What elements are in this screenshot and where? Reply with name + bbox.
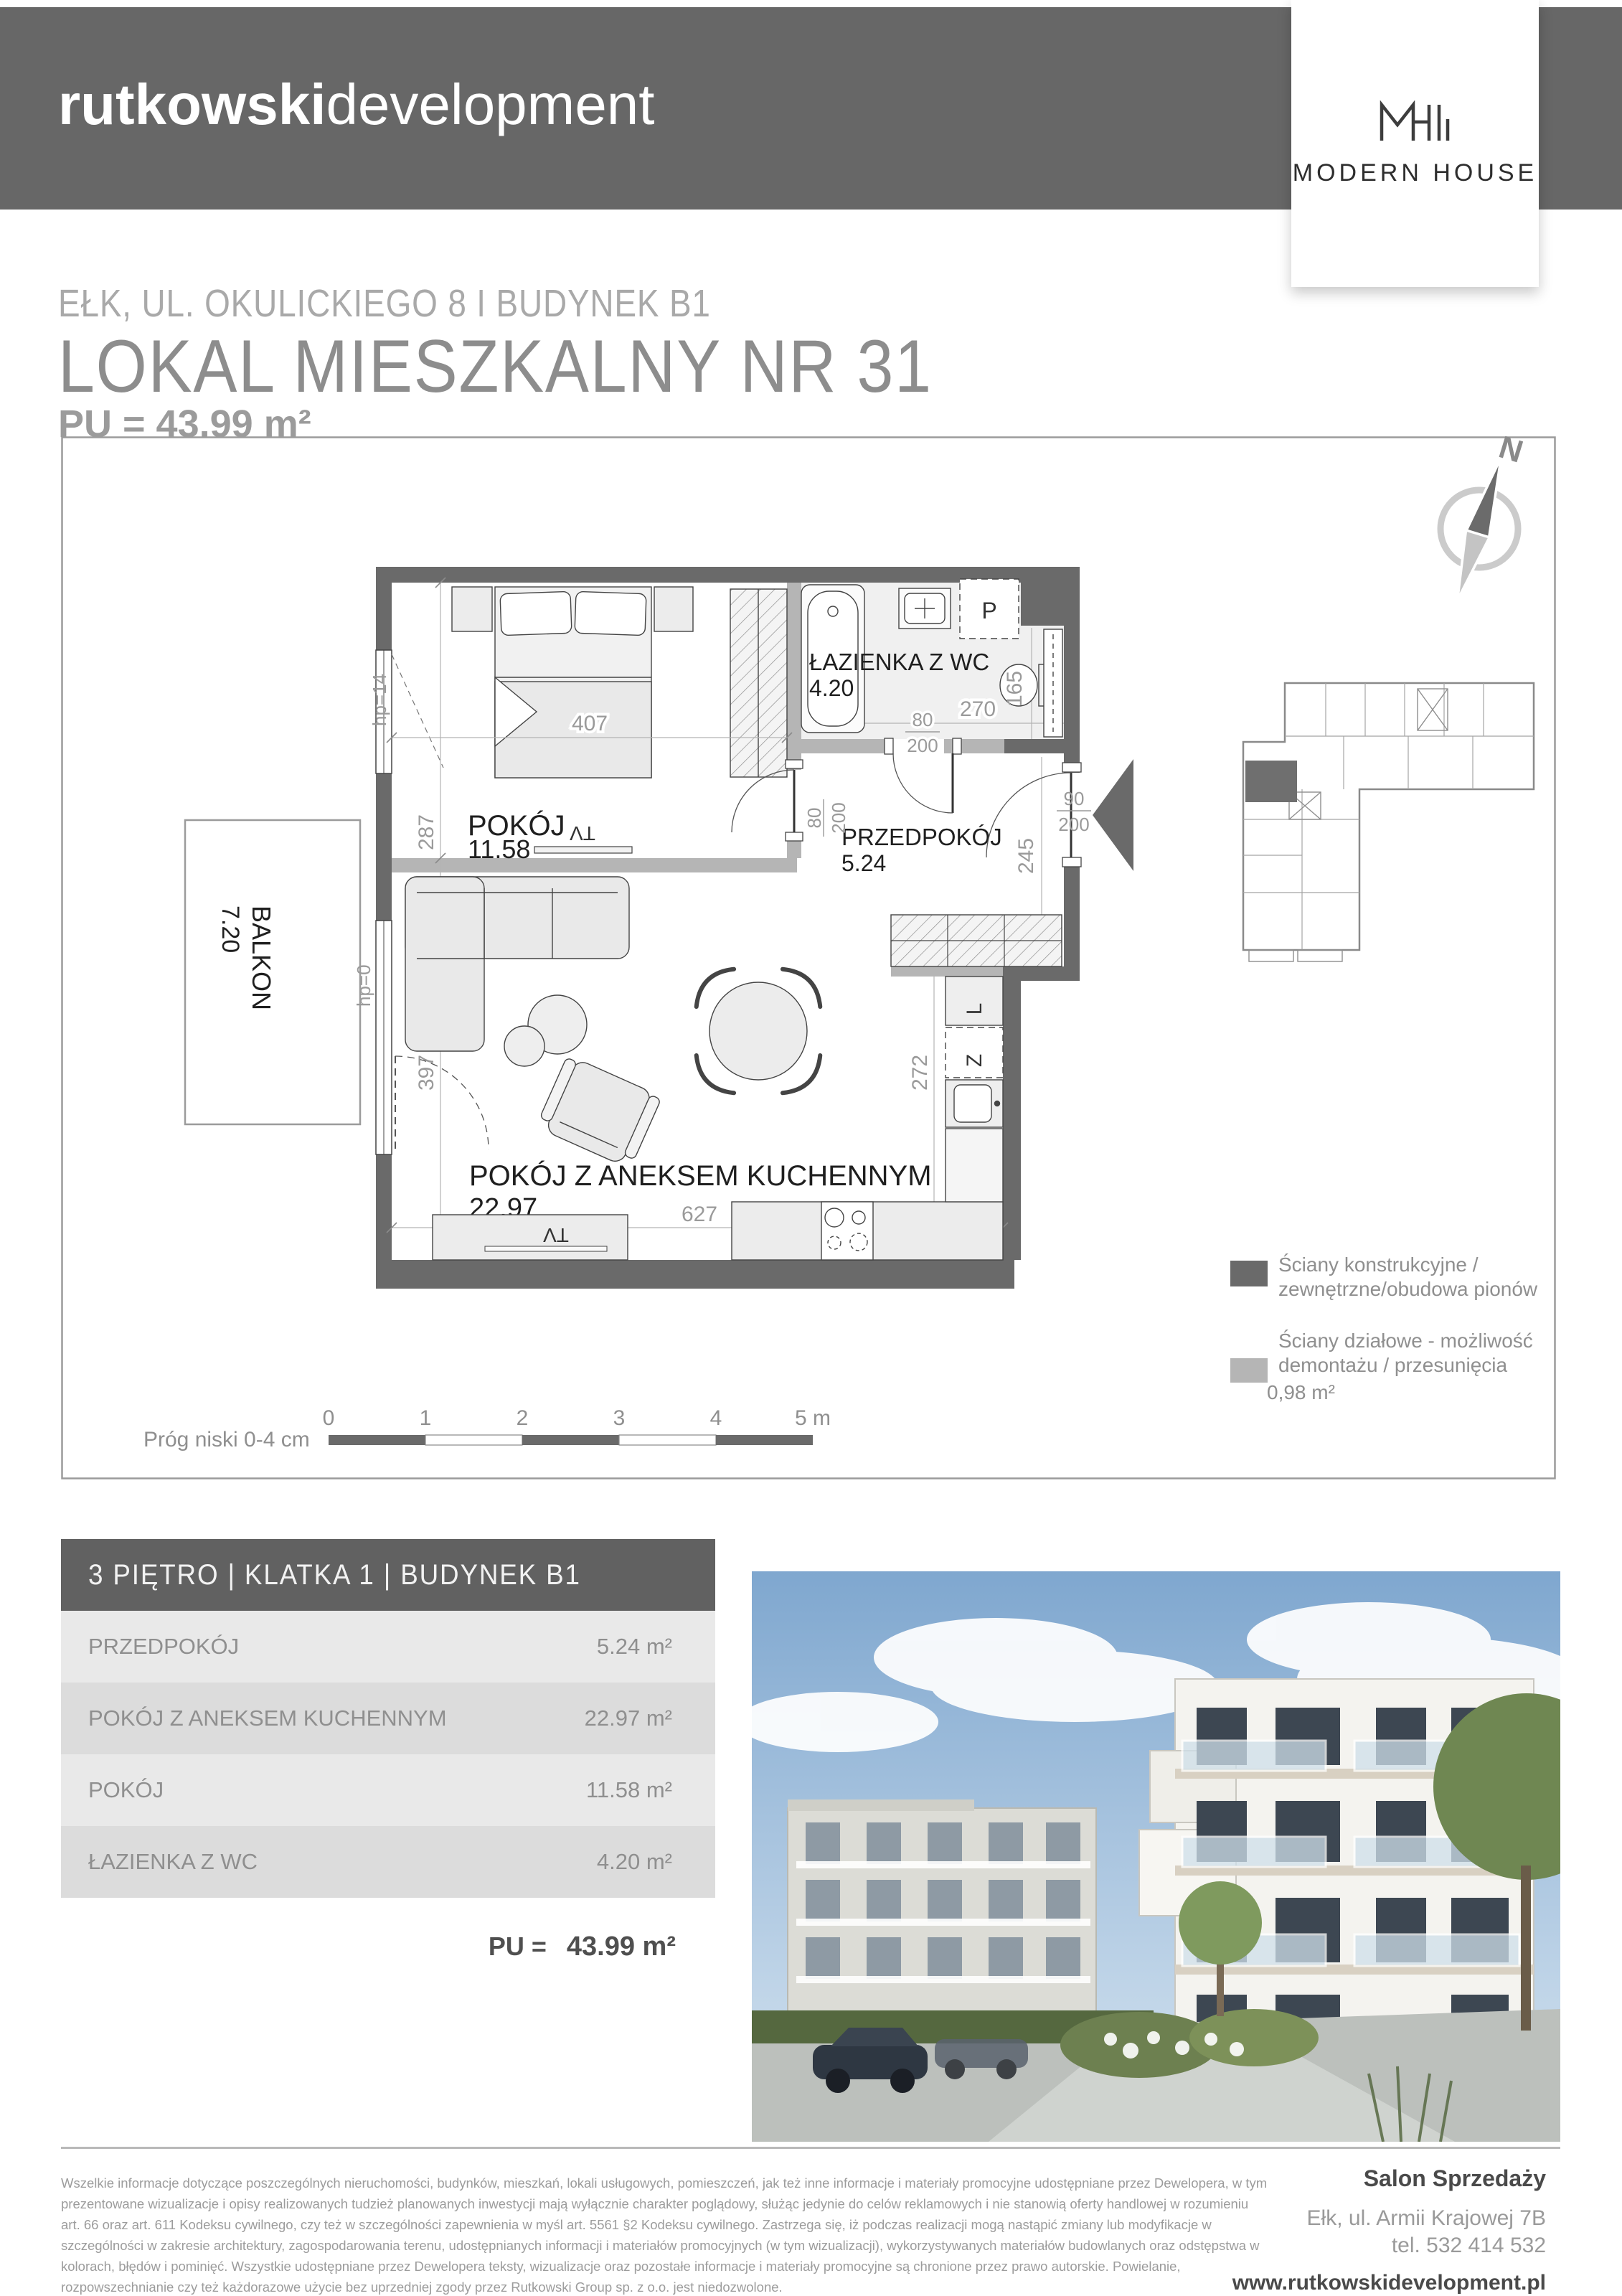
scale-tick: 1 xyxy=(420,1406,432,1430)
scale-tick: 0 xyxy=(323,1406,335,1430)
building-photo xyxy=(752,1571,1560,2142)
footer-divider xyxy=(61,2147,1560,2149)
legal-text: Wszelkie informacje dotyczące poszczegól… xyxy=(61,2173,1302,2296)
table-row: POKÓJ 11.58 m² xyxy=(61,1754,715,1826)
row-name: POKÓJ xyxy=(88,1777,164,1803)
brand-bold: rutkowski xyxy=(58,72,326,136)
scale-note: Próg niski 0-4 cm xyxy=(143,1428,310,1452)
total-value: 43.99 m² xyxy=(567,1932,676,1962)
bedroom-area: 11.58 xyxy=(468,834,530,864)
door-dim-80b: 80 xyxy=(913,709,933,730)
scale-tick: 4 xyxy=(710,1406,722,1430)
modern-house-logo-icon xyxy=(1379,100,1451,145)
floor-plan: N xyxy=(61,436,1556,1479)
bedroom-furniture xyxy=(452,587,787,778)
fridge-label: L xyxy=(963,1003,986,1015)
door-dim-200b: 200 xyxy=(907,735,938,756)
table-total: PU =43.99 m² xyxy=(61,1932,715,1962)
balcony: BALKON 7.20 xyxy=(185,820,360,1124)
sales-office-block: Salon Sprzedaży Ełk, ul. Armii Krajowej … xyxy=(1232,2165,1546,2295)
hall-area: 5.24 xyxy=(841,850,886,876)
legend-partition-line1: Ściany działowe - możliwość xyxy=(1278,1329,1533,1352)
row-area: 11.58 m² xyxy=(586,1777,672,1803)
washer-label: P xyxy=(981,598,996,624)
legend-structural-line2: zewnętrzne/obudowa pionów xyxy=(1278,1278,1538,1300)
brand-light: development xyxy=(326,72,654,136)
window-hp-label: hp=14 xyxy=(369,674,390,726)
legend-structural-line1: Ściany konstrukcyjne / xyxy=(1278,1253,1479,1276)
door-dim-200a: 200 xyxy=(828,802,849,833)
modern-house-card: MODERN HOUSE xyxy=(1291,0,1539,287)
door-dim-90: 90 xyxy=(1064,788,1085,809)
row-name: ŁAZIENKA Z WC xyxy=(88,1849,258,1875)
door-dim-200c: 200 xyxy=(1058,814,1089,835)
sales-office-website: www.rutkowskidevelopment.pl xyxy=(1232,2271,1546,2295)
hall-wardrobe xyxy=(891,915,1062,966)
balcony-area: 7.20 xyxy=(217,905,244,953)
bathroom-label: ŁAZIENKA Z WC xyxy=(809,649,989,675)
bedroom-tv-label: TV xyxy=(570,822,595,844)
legal-line: kolorach, błędów i pominięć. Wszystkie u… xyxy=(61,2256,1302,2277)
scale-tick: 3 xyxy=(613,1406,626,1430)
total-label: PU = xyxy=(489,1932,547,1961)
living-label: POKÓJ Z ANEKSEM KUCHENNYM xyxy=(469,1159,932,1192)
dishwasher-label: Z xyxy=(963,1054,986,1067)
address-line: EŁK, UL. OKULICKIEGO 8 I BUDYNEK B1 xyxy=(58,281,711,326)
page-title: LOKAL MIESZKALNY NR 31 xyxy=(58,324,933,410)
legend-swatch-structural xyxy=(1230,1261,1268,1286)
table-row: POKÓJ Z ANEKSEM KUCHENNYM 22.97 m² xyxy=(61,1683,715,1754)
dim-627: 627 xyxy=(682,1203,717,1226)
dim-407: 407 xyxy=(572,712,608,735)
scale-tick: 5 m xyxy=(795,1406,831,1430)
legend-partition-area: 0,98 m² xyxy=(1267,1381,1335,1403)
table-row: PRZEDPOKÓJ 5.24 m² xyxy=(61,1611,715,1683)
sales-office-address: Ełk, ul. Armii Krajowej 7B xyxy=(1232,2205,1546,2232)
legal-line: Wszelkie informacje dotyczące poszczegól… xyxy=(61,2173,1302,2193)
row-name: PRZEDPOKÓJ xyxy=(88,1634,239,1660)
bathroom-area: 4.20 xyxy=(809,675,854,701)
legend-swatch-partition xyxy=(1230,1358,1268,1383)
legal-line: art. 66 oraz art. 611 Kodeksu cywilnego,… xyxy=(61,2214,1302,2235)
balcony-label: BALKON xyxy=(247,905,276,1010)
sales-office-phone: tel. 532 414 532 xyxy=(1232,2232,1546,2259)
living-tv-cabinet: TV xyxy=(433,1215,628,1260)
dim-287: 287 xyxy=(415,814,438,850)
legend-partition-line2: demontażu / przesunięcia xyxy=(1278,1354,1508,1376)
modern-house-name: MODERN HOUSE xyxy=(1291,159,1539,187)
row-area: 5.24 m² xyxy=(597,1634,672,1660)
dim-165: 165 xyxy=(1003,671,1027,707)
dim-272: 272 xyxy=(908,1055,932,1091)
table-header-text: 3 PIĘTRO | KLATKA 1 | BUDYNEK B1 xyxy=(88,1559,581,1591)
balcony-hp-label: hp=0 xyxy=(353,964,374,1007)
hall-label: PRZEDPOKÓJ xyxy=(841,824,1002,850)
dim-397: 397 xyxy=(415,1055,438,1091)
legal-line: szczególności w zakresie architektury, z… xyxy=(61,2235,1302,2256)
legal-line: rozpowszechnianie czy też każdorazowe uż… xyxy=(61,2277,1302,2296)
dim-245: 245 xyxy=(1014,838,1038,874)
dim-270: 270 xyxy=(960,697,996,721)
row-area: 4.20 m² xyxy=(597,1849,672,1875)
legal-line: prezentowane wizualizacje i opisy realiz… xyxy=(61,2193,1302,2214)
table-header: 3 PIĘTRO | KLATKA 1 | BUDYNEK B1 xyxy=(61,1539,715,1611)
door-dim-80a: 80 xyxy=(803,808,825,829)
table-row: ŁAZIENKA Z WC 4.20 m² xyxy=(61,1826,715,1898)
row-name: POKÓJ Z ANEKSEM KUCHENNYM xyxy=(88,1705,447,1731)
scale-tick: 2 xyxy=(517,1406,529,1430)
living-tv-label: TV xyxy=(543,1224,569,1246)
brand-logo: rutkowskidevelopment xyxy=(58,76,655,133)
locator-highlighted-unit xyxy=(1245,761,1297,802)
page: rutkowskidevelopment MODERN HOUSE EŁK, U… xyxy=(0,0,1622,2296)
far-building xyxy=(788,1799,1096,2031)
row-area: 22.97 m² xyxy=(585,1705,672,1731)
sales-office-title: Salon Sprzedaży xyxy=(1232,2165,1546,2192)
area-table: 3 PIĘTRO | KLATKA 1 | BUDYNEK B1 PRZEDPO… xyxy=(61,1539,715,1898)
